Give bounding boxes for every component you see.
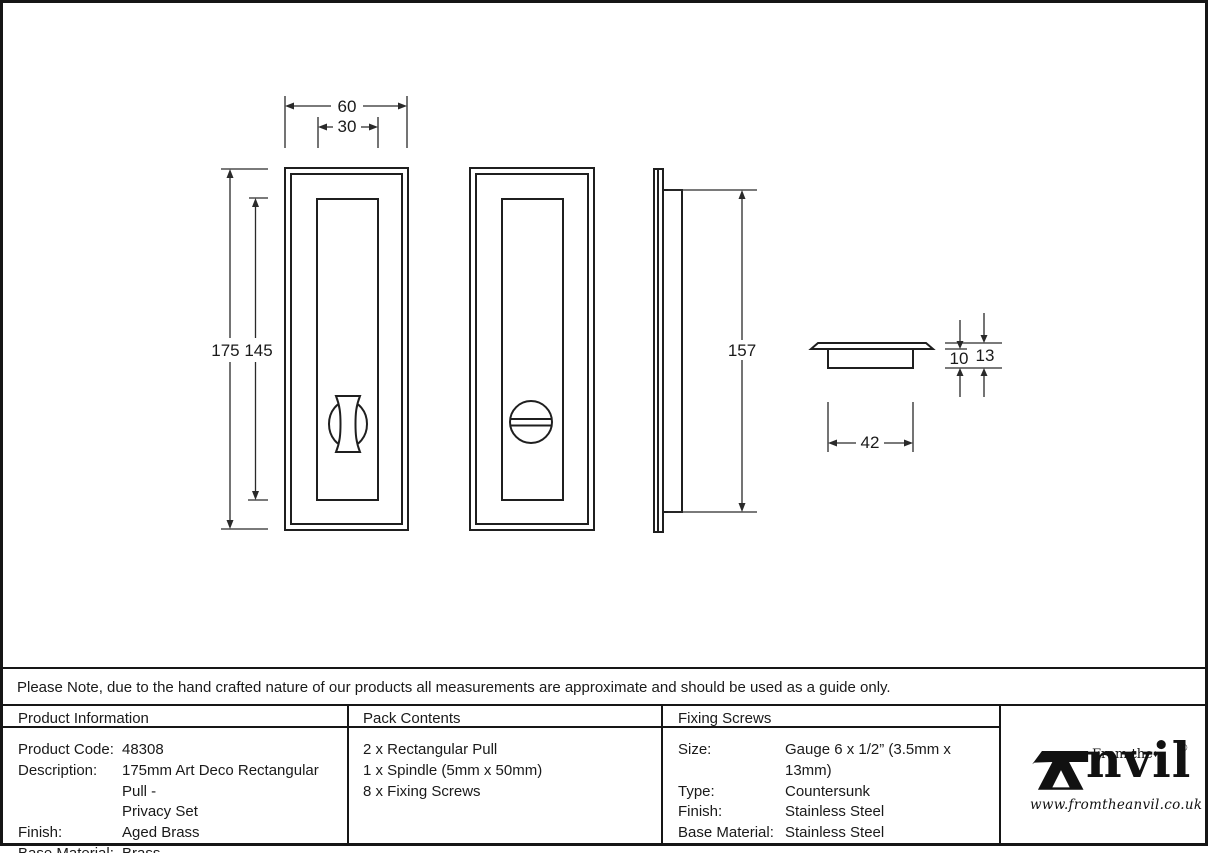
spec-value: Aged Brass — [122, 823, 344, 844]
logo-website-url: www.fromtheanvil.co.uk — [1030, 797, 1199, 813]
registered-trademark-icon: ® — [1180, 743, 1187, 754]
front-view-thumbturn — [285, 168, 408, 530]
pull-a-inner-border — [291, 174, 402, 524]
spec-value: 175mm Art Deco Rectangular Pull - — [122, 761, 344, 803]
pull-a-outer-plate — [285, 168, 408, 530]
dim-side-height-label: 157 — [728, 341, 756, 360]
measurement-note: Please Note, due to the hand crafted nat… — [17, 679, 1187, 696]
spec-value: Privacy Set — [122, 802, 344, 823]
dim-panel-width-label: 30 — [338, 117, 357, 136]
side-recessed-cup — [663, 190, 682, 512]
side-profile-view — [654, 169, 682, 532]
coin-release-turn — [510, 401, 552, 443]
table-row: Product Code: 48308 — [18, 740, 344, 761]
table-row: Size: Gauge 6 x 1/2” (3.5mm x 13mm) — [678, 740, 994, 782]
table-row: Type: Countersunk — [678, 782, 994, 803]
spec-label: Description: — [18, 761, 122, 803]
pack-item: 1 x Spindle (5mm x 50mm) — [363, 761, 653, 782]
spec-label: Base Material: — [18, 844, 122, 853]
table-row: Finish: Stainless Steel — [678, 802, 994, 823]
pack-item: 2 x Rectangular Pull — [363, 740, 653, 761]
top-plan-view — [811, 343, 933, 368]
spec-value: Stainless Steel — [785, 802, 994, 823]
product-information-header: Product Information — [18, 710, 149, 727]
col-divider-1 — [347, 704, 349, 843]
spec-value: Brass — [122, 844, 344, 853]
brand-logo: From the ♦ nvil ® www.fromtheanvil.co.uk — [1032, 743, 1197, 815]
top-cup — [828, 349, 913, 368]
spec-label: Product Code: — [18, 740, 122, 761]
pull-b-outer-plate — [470, 168, 594, 530]
front-view-coin-release — [470, 168, 594, 530]
dim-cup-width: 42 — [828, 402, 913, 452]
pull-a-recessed-panel — [317, 199, 378, 500]
table-row: Privacy Set — [18, 802, 344, 823]
dim-front-width-label: 60 — [338, 97, 357, 116]
dim-panel-width: 30 — [318, 117, 378, 148]
anvil-logo-icon — [1032, 747, 1090, 792]
pull-b-inner-border — [476, 174, 588, 524]
table-row: Base Material: Brass — [18, 844, 344, 853]
brand-logo-cell: From the ♦ nvil ® www.fromtheanvil.co.uk — [1000, 705, 1206, 843]
spec-label — [18, 802, 122, 823]
spec-value: 48308 — [122, 740, 344, 761]
pack-contents-list: 2 x Rectangular Pull 1 x Spindle (5mm x … — [363, 740, 653, 802]
dimension-lines: 60 30 — [211, 96, 1002, 529]
logo-wordmark: nvil — [1086, 731, 1191, 790]
table-row: Finish: Aged Brass — [18, 823, 344, 844]
dim-front-heights-label: 175 145 — [211, 341, 272, 360]
spec-label: Finish: — [678, 802, 785, 823]
spec-label: Size: — [678, 740, 785, 782]
spec-label: Finish: — [18, 823, 122, 844]
dim-total-depth-label: 13 — [976, 346, 995, 365]
pack-contents-header: Pack Contents — [363, 710, 461, 727]
table-row: Description: 175mm Art Deco Rectangular … — [18, 761, 344, 803]
technical-drawing: 60 30 — [0, 0, 1214, 668]
dim-cup-depth-label: 10 — [950, 349, 969, 368]
pull-b-recessed-panel — [502, 199, 563, 500]
col-divider-2 — [661, 704, 663, 843]
dim-depths: 10 13 — [945, 313, 1002, 397]
pack-item: 8 x Fixing Screws — [363, 782, 653, 803]
spec-sheet-page: 60 30 — [0, 0, 1214, 853]
product-information-table: Product Code: 48308 Description: 175mm A… — [18, 740, 344, 853]
table-header-rule — [0, 726, 1001, 728]
spec-value: Countersunk — [785, 782, 994, 803]
dim-cup-width-label: 42 — [861, 433, 880, 452]
note-row-top-rule — [0, 667, 1208, 669]
dim-front-heights: 175 145 — [211, 169, 272, 529]
spec-value: Stainless Steel — [785, 823, 994, 844]
table-row: Base Material: Stainless Steel — [678, 823, 994, 844]
spec-label: Type: — [678, 782, 785, 803]
fixing-screws-table: Size: Gauge 6 x 1/2” (3.5mm x 13mm) Type… — [678, 740, 994, 844]
spec-label: Base Material: — [678, 823, 785, 844]
thumbturn-knob — [336, 396, 360, 452]
spec-value: Gauge 6 x 1/2” (3.5mm x 13mm) — [785, 740, 994, 782]
fixing-screws-header: Fixing Screws — [678, 710, 771, 727]
